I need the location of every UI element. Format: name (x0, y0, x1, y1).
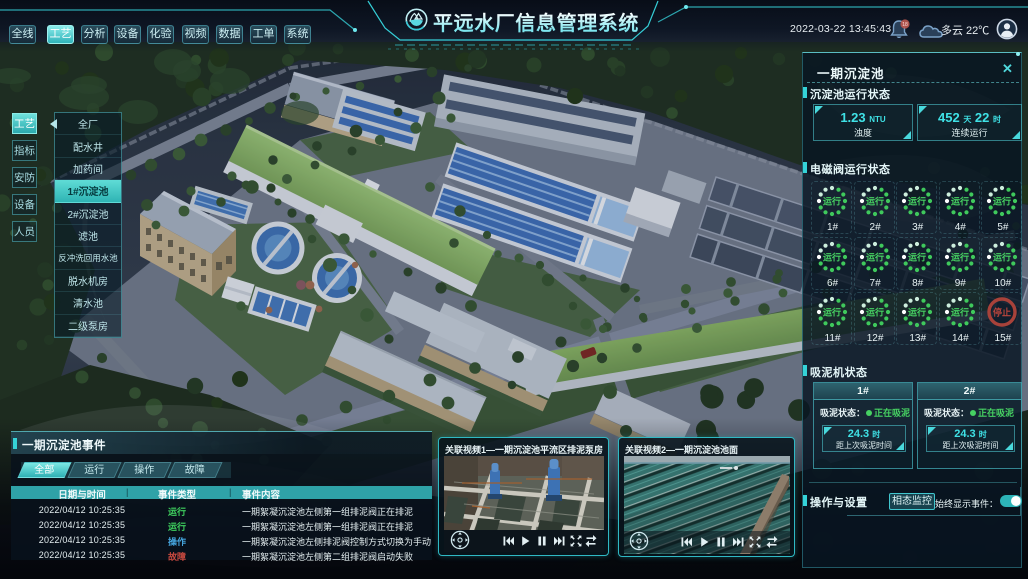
svg-text:运行: 运行 (823, 307, 841, 318)
svg-text:运行: 运行 (993, 251, 1011, 262)
svg-text:运行: 运行 (908, 196, 926, 207)
svg-text:运行: 运行 (951, 307, 969, 318)
svg-text:运行: 运行 (951, 251, 969, 262)
svg-text:运行: 运行 (866, 251, 884, 262)
svg-text:运行: 运行 (823, 196, 841, 207)
svg-text:运行: 运行 (908, 307, 926, 318)
svg-text:运行: 运行 (951, 196, 969, 207)
svg-text:18: 18 (902, 22, 908, 28)
svg-text:运行: 运行 (866, 307, 884, 318)
svg-text:停止: 停止 (993, 307, 1011, 318)
svg-text:运行: 运行 (866, 196, 884, 207)
svg-text:运行: 运行 (823, 251, 841, 262)
svg-text:运行: 运行 (993, 196, 1011, 207)
svg-text:运行: 运行 (908, 251, 926, 262)
